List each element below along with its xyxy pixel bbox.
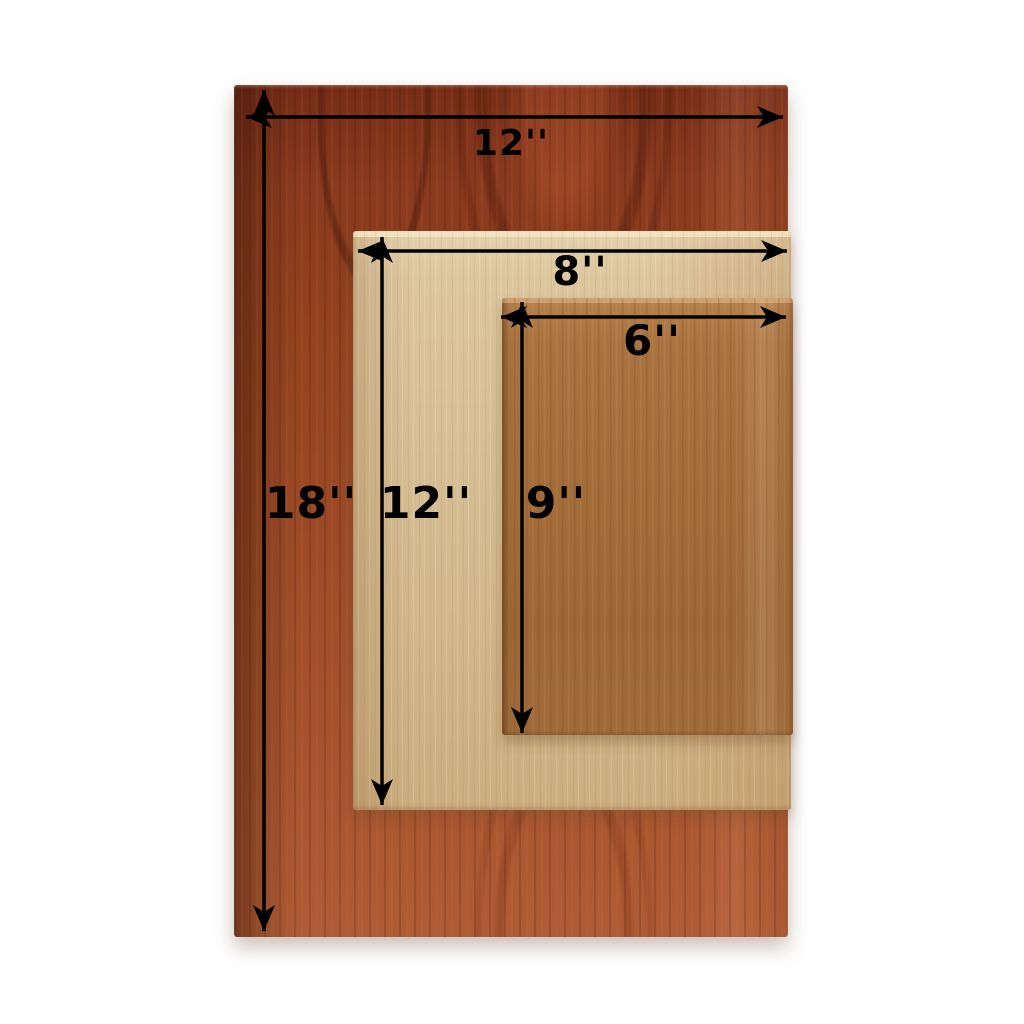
large-board-height-label: 18'' [265, 482, 357, 526]
large-board-width-label: 12'' [473, 126, 549, 162]
board-size-diagram: 12'' 18'' 8'' 12'' 6'' 9'' [0, 0, 1024, 1024]
medium-board-width-label: 8'' [552, 252, 607, 292]
small-board-height-label: 9'' [526, 482, 587, 526]
small-board-width-label: 6'' [623, 320, 681, 362]
medium-board-height-label: 12'' [380, 482, 472, 526]
